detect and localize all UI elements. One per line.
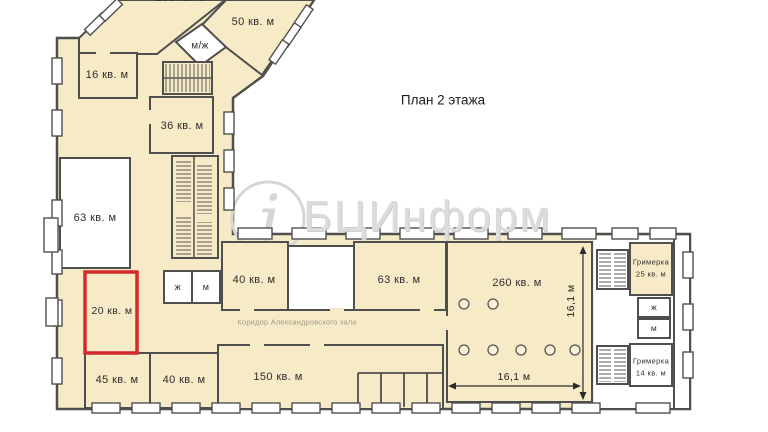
wc-women-east-label: ж	[651, 302, 657, 312]
room-40-south-label: 40 кв. м	[163, 374, 206, 386]
room-16-label: 16 кв. м	[86, 69, 129, 81]
wc-shared-label: м/ж	[191, 41, 209, 52]
wc-men-mid-label: м	[203, 282, 210, 292]
room-100-label: 100 кв. м	[155, 0, 204, 4]
room-unlabeled	[288, 246, 354, 310]
staircase-east-bottom	[597, 346, 628, 384]
staircase-core	[172, 156, 218, 258]
staircase-east-top	[597, 250, 628, 289]
dimension-vertical-label: 16,1 м	[565, 285, 577, 318]
room-20-label: 20 кв. м	[91, 305, 132, 317]
room-260-label: 260 кв. м	[492, 277, 541, 289]
watermark-text: БЦИнформ	[303, 192, 552, 242]
room-63-west-label: 63 кв. м	[74, 212, 117, 224]
corridor-label: Коридор Александровского зала	[237, 318, 356, 327]
room-40-north-label: 40 кв. м	[233, 274, 276, 286]
dressing-25-area: 25 кв. м	[636, 270, 666, 279]
wc-men-east-label: м	[651, 323, 657, 333]
room-45-label: 45 кв. м	[96, 374, 139, 386]
room-150	[218, 345, 443, 409]
dressing-25-name: Гримерка	[633, 258, 669, 267]
page-title: План 2 этажа	[401, 93, 485, 108]
staircase-north	[163, 62, 212, 94]
dressing-14-area: 14 кв. м	[636, 369, 666, 378]
room-63-north-label: 63 кв. м	[378, 274, 421, 286]
floor-plan-page: i	[0, 0, 768, 432]
dressing-14-name: Гримерка	[633, 357, 669, 366]
room-150-label: 150 кв. м	[253, 371, 302, 383]
dimension-horizontal-label: 16,1 м	[498, 371, 531, 383]
room-50-label: 50 кв. м	[232, 16, 275, 28]
room-36-label: 36 кв. м	[161, 120, 204, 132]
wc-women-mid-label: ж	[175, 282, 181, 292]
